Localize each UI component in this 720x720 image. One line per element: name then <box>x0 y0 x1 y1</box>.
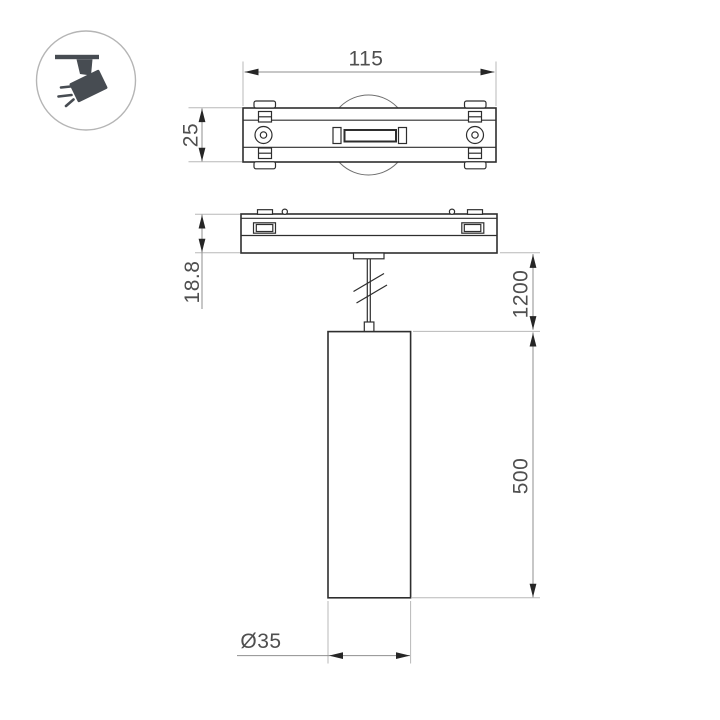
dimension-track-length: 115 <box>243 48 496 107</box>
dimension-label-suspension-length: 1200 <box>510 270 533 319</box>
arrowhead-left <box>245 69 259 76</box>
arrowhead-up <box>530 254 537 268</box>
top-pin-left <box>282 209 287 214</box>
dimension-drawing-svg: 115 25 18.8 1200 <box>0 0 720 720</box>
arrowhead-down <box>530 584 537 598</box>
arrowhead-up <box>199 109 206 123</box>
dimension-lamp-diameter: Ø35 <box>237 601 411 664</box>
dimension-suspension-length: 1200 <box>413 253 540 332</box>
icon-light-ray <box>61 87 71 88</box>
connector-slot <box>333 128 407 144</box>
icon-light-ray <box>59 95 72 97</box>
pendant-lamp-drawing <box>328 259 411 598</box>
arrowhead-left <box>329 652 343 659</box>
dimension-label-lamp-diameter: Ø35 <box>240 630 281 653</box>
screw-head-right <box>467 127 484 144</box>
dimension-label-track-width: 25 <box>180 123 203 147</box>
arrowhead-right <box>481 69 495 76</box>
screw-head-left <box>255 127 272 144</box>
side-view-drawing <box>241 209 497 259</box>
dimension-label-track-length: 115 <box>349 48 384 71</box>
icon-ceiling-bar <box>55 55 99 59</box>
arrowhead-up <box>530 333 537 347</box>
track-base-side-body <box>241 214 497 253</box>
dimension-track-width: 25 <box>180 108 243 162</box>
arrowhead-up <box>199 215 206 229</box>
track-spotlight-icon <box>37 31 136 130</box>
top-lug-left <box>258 210 273 215</box>
cable-gland-tab <box>354 253 385 259</box>
arrowhead-down <box>199 239 206 253</box>
arrowhead-down <box>199 148 206 162</box>
top-lug-right <box>468 210 483 215</box>
dimension-lamp-length: 500 <box>412 332 540 597</box>
drawing-canvas: 115 25 18.8 1200 <box>0 0 720 720</box>
top-view-drawing <box>243 95 496 175</box>
cylindrical-lamp-body <box>328 332 411 598</box>
dimension-base-height: 18.8 <box>181 214 240 309</box>
side-slot-right <box>462 223 484 233</box>
top-pin-right <box>449 209 454 214</box>
arrowhead-right <box>396 652 410 659</box>
dimension-label-base-height: 18.8 <box>181 261 204 304</box>
side-slot-left <box>254 223 276 233</box>
cable-connector <box>364 322 374 332</box>
dimension-label-lamp-length: 500 <box>510 458 533 495</box>
